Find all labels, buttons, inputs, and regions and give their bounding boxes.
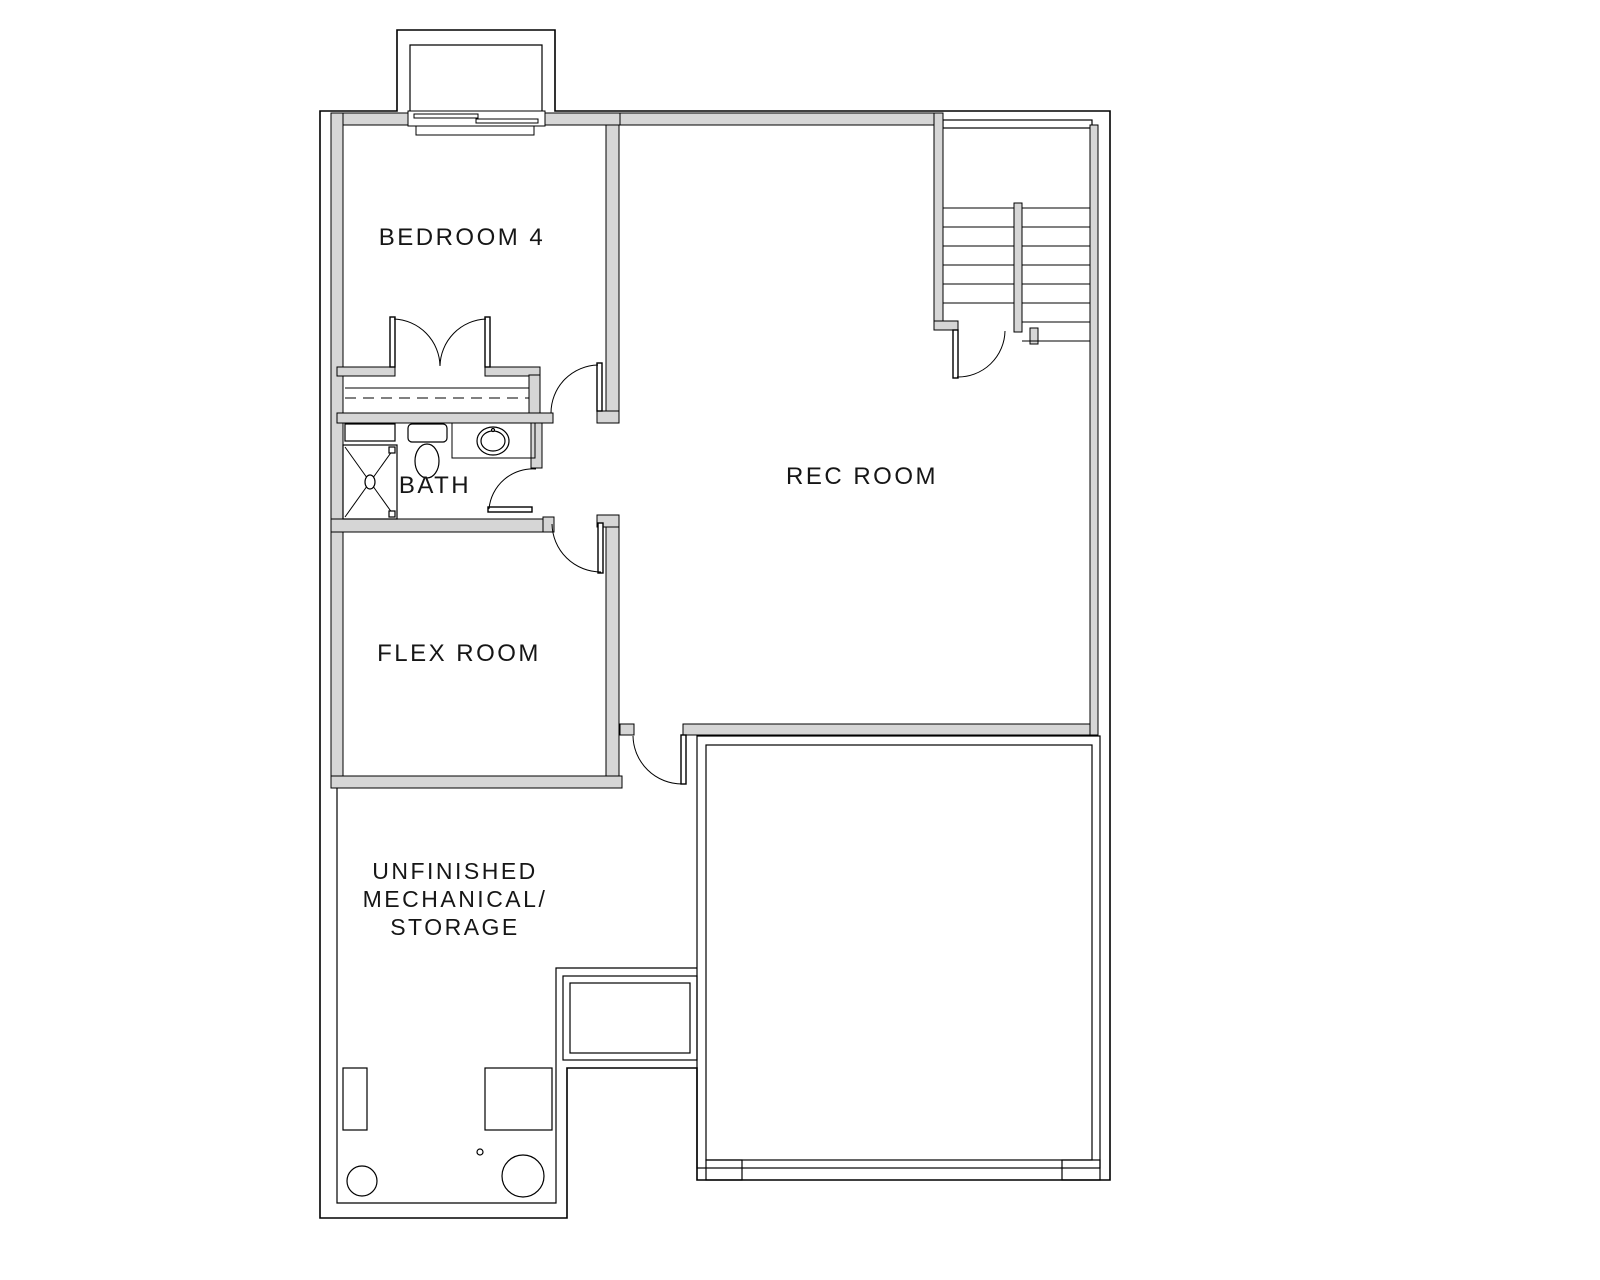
floor-plan-canvas: BEDROOM 4 REC ROOM BATH FLEX ROOM UNFINI… <box>0 0 1600 1280</box>
window-sash-right <box>476 119 538 123</box>
flex-room-label: FLEX ROOM <box>377 640 541 667</box>
wall-bedroom-south-left <box>337 367 395 376</box>
wall-flex-south <box>331 776 622 788</box>
floor-drain-icon <box>477 1149 483 1155</box>
mechanical-label: UNFINISHED MECHANICAL/ STORAGE <box>363 858 548 940</box>
wall-left-exterior <box>331 113 343 788</box>
walls <box>331 113 1098 788</box>
bottom-right-room-wall-inner <box>706 745 1092 1160</box>
under-stair-alcove-outer <box>563 976 697 1060</box>
bath-door-leaf <box>488 507 532 512</box>
window-sill <box>416 126 534 135</box>
bottom-right-room-notch-right <box>1062 1160 1100 1180</box>
bottom-right-room-wall-outer <box>697 736 1100 1168</box>
mechanical-label-line2: MECHANICAL/ <box>363 886 548 912</box>
closet-door-arc-right <box>440 319 486 366</box>
linen-cabinet <box>345 424 395 441</box>
bath-door-arc <box>489 469 536 509</box>
wall-top-rec <box>620 113 936 125</box>
electrical-panel-icon <box>343 1068 367 1130</box>
bath-fixtures <box>343 423 535 519</box>
window-sash-left <box>414 114 478 118</box>
stair-door-leaf <box>953 330 958 378</box>
mechanical-room <box>337 788 697 1203</box>
bath-label: BATH <box>399 472 471 499</box>
stair-treads-left <box>943 208 1014 303</box>
flex-door-arc <box>552 524 601 572</box>
bedroom4-label: BEDROOM 4 <box>379 224 546 251</box>
mechanical-label-line3: STORAGE <box>390 914 520 940</box>
sink-vanity-icon <box>452 423 535 458</box>
closet-door-leaf-right <box>485 317 490 367</box>
floor-plan-drawing: BEDROOM 4 REC ROOM BATH FLEX ROOM UNFINI… <box>0 0 1600 1280</box>
wall-rec-west-lower <box>606 515 619 788</box>
window-well <box>410 45 542 111</box>
water-heater-icon <box>502 1155 544 1197</box>
stair-treads-right <box>1022 208 1090 341</box>
wall-jamb-hall-north <box>597 411 619 423</box>
rec-mech-door-arc <box>633 736 682 784</box>
bedroom-door-leaf <box>597 363 602 411</box>
wall-rec-east <box>1090 125 1098 735</box>
under-stair-alcove-inner <box>570 983 690 1053</box>
rec-room-label: REC ROOM <box>786 463 938 490</box>
wall-rec-south-left <box>620 724 634 735</box>
wall-bedroom-east <box>606 125 619 413</box>
wall-closet-south <box>337 413 553 423</box>
doors <box>488 330 1005 784</box>
furnace-icon <box>485 1068 552 1130</box>
closet-door-arc-left <box>394 319 440 366</box>
room-labels: BEDROOM 4 REC ROOM BATH FLEX ROOM UNFINI… <box>363 224 938 940</box>
toilet-icon <box>408 424 447 478</box>
wall-bath-east <box>531 423 542 468</box>
bottom-right-room <box>697 736 1100 1180</box>
window-bedroom <box>408 111 545 135</box>
closet-door-leaf-left <box>390 317 395 367</box>
water-softener-icon <box>347 1166 377 1196</box>
mechanical-label-line1: UNFINISHED <box>372 858 538 884</box>
stair-newel-stub <box>1030 328 1038 344</box>
shower-icon <box>343 445 397 519</box>
wall-stair-divider <box>1014 203 1022 332</box>
mech-inner-outline <box>337 788 697 1203</box>
wall-stair-bottom <box>934 321 958 330</box>
flex-door-leaf <box>598 523 603 573</box>
wall-top-stairwell <box>943 120 1092 128</box>
stair-door-arc <box>957 331 1005 377</box>
wall-rec-south-right <box>683 724 1095 735</box>
wall-closet-east <box>529 375 540 415</box>
wall-bath-south <box>331 519 543 532</box>
bedroom-door-arc <box>551 365 598 413</box>
bedroom-closet <box>345 317 529 398</box>
wall-stair-west <box>934 113 943 330</box>
rec-mech-door-leaf <box>681 735 686 784</box>
bottom-right-room-notch-left <box>706 1160 742 1180</box>
